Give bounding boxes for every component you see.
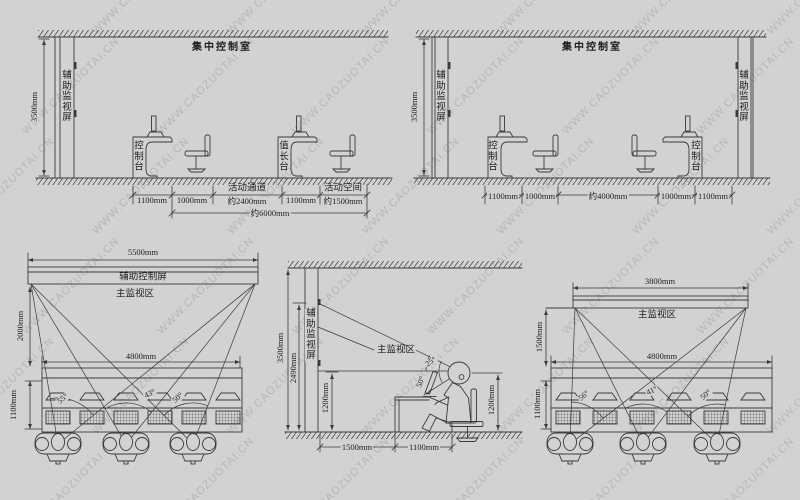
dim-label: 1000mm	[176, 196, 208, 205]
screen-width-dim-label: 3800mm	[645, 277, 675, 286]
screen-width-dim-label: 5500mm	[128, 248, 158, 257]
console-depth-dim-label: 1100mm	[533, 388, 542, 420]
scanned-technical-drawing: WWW.CAOZUOTAI.CNWWW.CAOZUOTAI.CNWWW.CAOZ…	[0, 0, 800, 500]
console-label: 控制台	[690, 141, 702, 173]
angle-label: 25°	[423, 355, 438, 369]
total-dim-label: 约6000mm	[250, 209, 291, 218]
angle-label: 50°	[698, 388, 713, 403]
eye-height-dim-label: 1200mm	[487, 384, 496, 416]
angle-label: 50°	[170, 391, 185, 406]
aux-control-screen-label: 辅助控制屏	[119, 273, 167, 283]
aux-screen-label: 辅助监视屏	[61, 71, 73, 124]
dim-label: 1100mm	[697, 192, 729, 201]
aux-screen-label: 辅助监视屏	[435, 71, 447, 124]
console-width-dim-label: 4800mm	[125, 352, 157, 361]
walkway-label: 活动通道	[227, 184, 267, 194]
room-title: 集中控制室	[192, 43, 252, 53]
room-title: 集中控制室	[562, 43, 622, 53]
floor-dim-label: 1100mm	[408, 443, 440, 452]
dim-label: 1100mm	[285, 196, 317, 205]
dim-label: 约2400mm	[227, 197, 268, 206]
angle-label: 55°	[55, 392, 70, 407]
angle-label: 41°	[644, 385, 659, 398]
aux-screen-label: 辅助监视屏	[738, 71, 750, 124]
main-viewing-zone-label: 主监视区	[376, 346, 416, 356]
console-width-dim-label: 4800mm	[646, 352, 678, 361]
dim-label: 1100mm	[487, 192, 519, 201]
main-viewing-zone-label: 主监视区	[638, 311, 676, 321]
angle-label: 50°	[415, 374, 427, 389]
height-dim-label: 1500mm	[535, 321, 544, 353]
main-viewing-zone-label: 主监视区	[116, 290, 154, 300]
dim-label: 约4000mm	[588, 192, 629, 201]
angle-label: 43°	[142, 388, 157, 401]
height-dim-label: 3500mm	[30, 91, 39, 123]
angle-label: 56°	[576, 389, 591, 404]
height-dim-label: 3500mm	[410, 91, 419, 123]
height-dim-label: 2000mm	[16, 310, 25, 342]
dim-label: 1000mm	[660, 192, 692, 201]
screen-top-dim-label: 2490mm	[289, 352, 298, 384]
dim-label: 约1500mm	[323, 197, 364, 206]
label-layer: 集中控制室 3500mm 辅助监视屏 控制台 值长台 1100mm 1000mm…	[0, 0, 800, 500]
activity-space-label: 活动空间	[323, 184, 363, 194]
console-depth-dim-label: 1100mm	[9, 389, 18, 421]
ceiling-height-dim-label: 3500mm	[276, 332, 285, 364]
aux-screen-label: 辅助监视屏	[305, 309, 317, 362]
dim-label: 1000mm	[524, 192, 556, 201]
console-label: 控制台	[487, 141, 499, 173]
shift-leader-desk-label: 值长台	[278, 141, 290, 173]
console-label: 控制台	[133, 141, 145, 173]
eye-height-dim-label: 1200mm	[321, 382, 330, 414]
floor-dim-label: 1500mm	[341, 443, 373, 452]
dim-label: 1100mm	[136, 196, 168, 205]
